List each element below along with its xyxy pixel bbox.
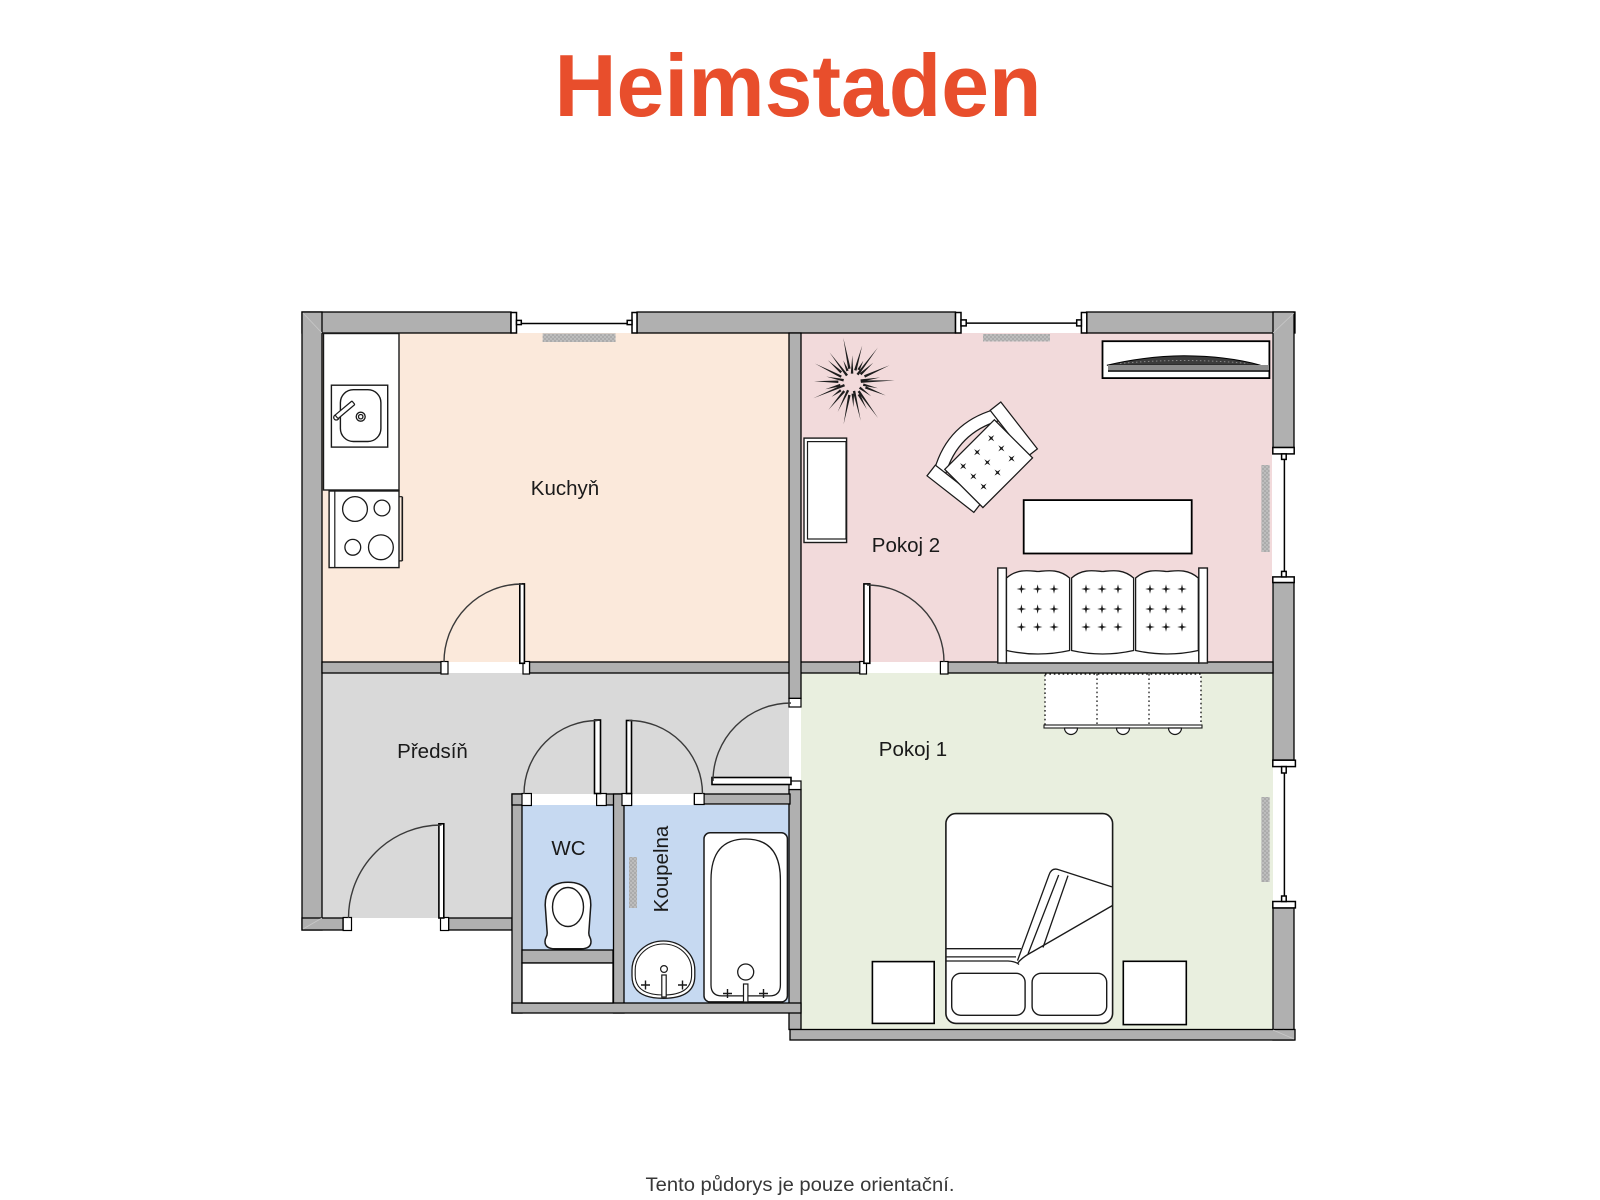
svg-text:Pokoj 1: Pokoj 1: [879, 738, 947, 761]
svg-text:Heimstaden: Heimstaden: [555, 36, 1042, 135]
svg-text:Předsíň: Předsíň: [397, 740, 468, 763]
svg-text:Tento půdorys je pouze orienta: Tento půdorys je pouze orientační.: [646, 1174, 955, 1196]
svg-text:Koupelna: Koupelna: [650, 825, 673, 912]
svg-text:Pokoj 2: Pokoj 2: [872, 534, 940, 557]
svg-text:Kuchyň: Kuchyň: [531, 477, 599, 500]
svg-text:WC: WC: [551, 837, 585, 860]
